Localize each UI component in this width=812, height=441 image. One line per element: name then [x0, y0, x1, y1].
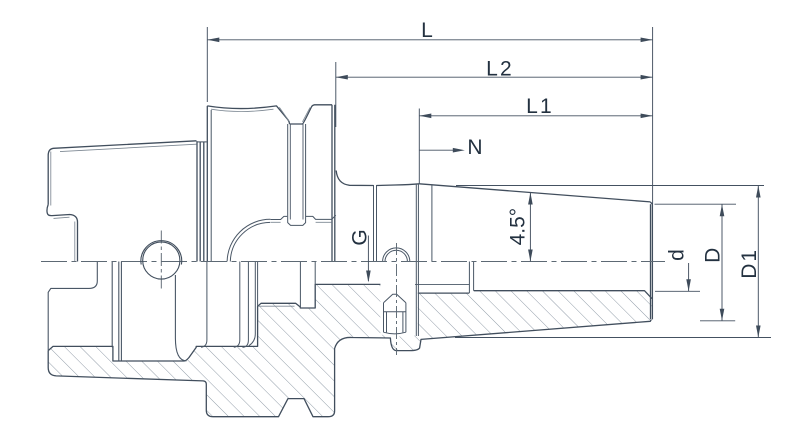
svg-text:4.5°: 4.5° — [506, 208, 529, 246]
svg-text:N: N — [467, 136, 482, 159]
svg-text:d: d — [666, 249, 689, 261]
svg-text:L: L — [421, 19, 433, 42]
svg-text:L1: L1 — [526, 95, 554, 118]
svg-text:G: G — [348, 229, 371, 245]
svg-text:L2: L2 — [486, 57, 514, 80]
svg-text:D1: D1 — [738, 248, 761, 279]
svg-text:D: D — [702, 248, 725, 263]
